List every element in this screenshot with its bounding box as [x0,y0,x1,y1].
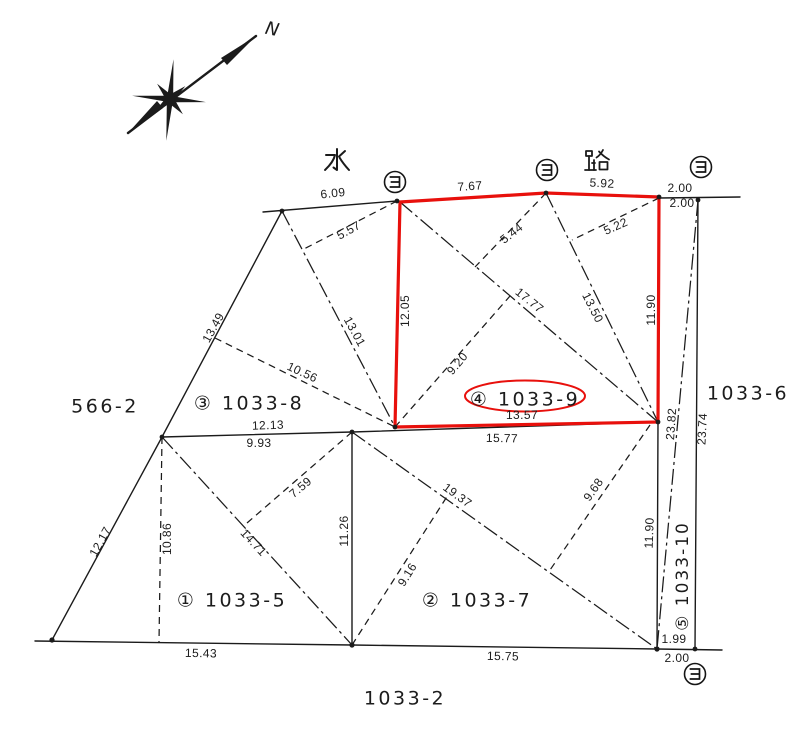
measurement-tie-759: 7.59 [286,474,314,501]
parcel-label-1033-2: 1033-2 [364,688,446,710]
parcel-label-1033-8: ③ 1033-8 [194,393,304,415]
measurement-bottom-east: 15.75 [487,649,519,664]
measurement-tie-557: 5.57 [334,218,363,242]
measurement-diag-1471: 14.71 [238,526,270,559]
parcel-label-566-2: 566-2 [71,396,139,418]
measurement-gap-top-upper: 2.00 [668,181,693,195]
measurement-tie-920: 9.20 [444,349,471,377]
compass-needle-sw [128,101,163,133]
measurement-strip-right: 23.74 [694,413,710,446]
measurement-diag-1937: 19.37 [440,480,474,510]
measurement-red-right: 11.90 [644,294,658,325]
measurement-diag-1350: 13.50 [579,290,606,325]
measurement-bottom-west: 15.43 [185,646,217,661]
measurement-red-top-east: 5.92 [589,176,615,191]
parcel-label-1033-10: ⑤ 1033-10 [673,521,693,631]
cadastral-survey-map: N [0,0,800,745]
boundary-marker-bottom-east [685,664,706,685]
parcel-label-1033-9: ④ 1033-9 [470,389,580,411]
measurement-red-left: 12.05 [398,295,412,327]
measurement-top-edge-west: 6.09 [320,185,346,202]
measurement-drop-1086: 10.86 [160,523,174,555]
measurement-edge-1126: 11.26 [337,515,351,546]
measurement-diag-1777: 17.77 [513,285,547,316]
measurement-mid-row-east: 15.77 [486,431,518,446]
boundary-marker-top-mid [537,160,558,181]
measurement-tie-544: 5.44 [497,220,525,246]
road-kanji [585,150,609,170]
parcel-label-1033-6: 1033-6 [707,383,789,405]
compass-needle-ne [221,36,256,65]
water-kanji [325,149,349,170]
measurement-tie-522: 5.22 [601,215,630,238]
measurement-gap-top-lower: 2.00 [670,196,695,210]
measurement-tie-916: 9.16 [395,560,420,589]
survey-vertex-dots [49,191,700,652]
measurement-red-top-west: 7.67 [457,178,483,194]
north-label: N [263,18,281,41]
measurement-gap-bottom-lower: 2.00 [665,651,690,665]
compass-rose: N [128,18,281,141]
measurement-strip-diag: 23.82 [663,407,679,440]
measurement-edge-1217: 12.17 [86,524,114,559]
measurement-gap-bottom-upper: 1.99 [662,632,687,646]
diagonal-lines-dashdot [162,193,698,649]
measurement-mid-row-west: 9.93 [247,436,272,450]
measurement-tie-968: 9.68 [580,475,606,503]
measurement-edge-1349: 13.49 [199,310,227,345]
measurement-mid-row-west-full: 12.13 [252,418,285,433]
boundary-marker-top-west [385,172,406,193]
measurement-strip-left-lower: 11.90 [642,517,657,549]
boundary-marker-top-east [691,157,712,178]
parcel-label-1033-7: ② 1033-7 [422,590,532,612]
parcel-label-1033-5: ① 1033-5 [177,590,287,612]
